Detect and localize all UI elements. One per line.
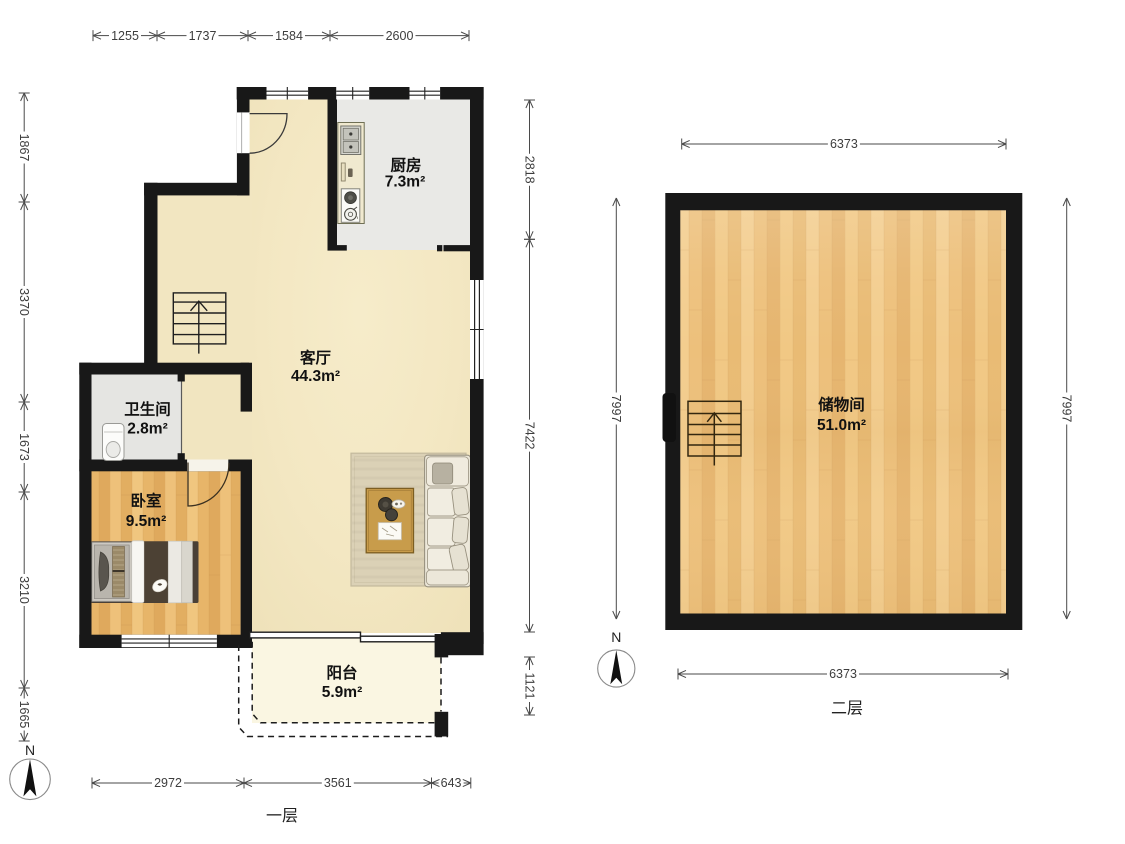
svg-text:44.3m²: 44.3m²: [291, 368, 340, 385]
svg-text:3210: 3210: [17, 576, 31, 604]
svg-text:7997: 7997: [1060, 395, 1074, 423]
svg-text:N: N: [611, 629, 621, 645]
svg-text:1737: 1737: [189, 29, 217, 43]
svg-text:储物间: 储物间: [817, 395, 865, 414]
svg-text:3561: 3561: [324, 776, 352, 790]
svg-text:2.8m²: 2.8m²: [127, 421, 168, 438]
svg-text:1867: 1867: [17, 134, 31, 162]
svg-text:6373: 6373: [830, 137, 858, 151]
svg-text:51.0m²: 51.0m²: [817, 417, 866, 434]
svg-text:阳台: 阳台: [326, 663, 357, 682]
svg-text:7422: 7422: [522, 422, 536, 450]
svg-text:7997: 7997: [609, 395, 623, 423]
svg-text:1673: 1673: [17, 433, 31, 461]
svg-text:5.9m²: 5.9m²: [322, 684, 363, 701]
svg-text:1584: 1584: [275, 29, 303, 43]
svg-text:2600: 2600: [386, 29, 414, 43]
svg-text:厨房: 厨房: [390, 156, 421, 175]
svg-text:N: N: [25, 742, 35, 758]
svg-text:3370: 3370: [17, 288, 31, 316]
svg-text:客厅: 客厅: [300, 348, 332, 367]
svg-text:643: 643: [441, 776, 462, 790]
svg-text:2818: 2818: [522, 156, 536, 184]
svg-text:卫生间: 卫生间: [124, 400, 171, 419]
svg-text:9.5m²: 9.5m²: [126, 513, 167, 530]
svg-text:6373: 6373: [829, 667, 857, 681]
svg-text:二层: 二层: [831, 701, 863, 718]
svg-text:7.3m²: 7.3m²: [385, 174, 426, 191]
svg-text:一层: 一层: [266, 808, 298, 825]
svg-text:2972: 2972: [154, 776, 182, 790]
svg-text:1255: 1255: [111, 29, 139, 43]
svg-text:1665: 1665: [17, 701, 31, 729]
svg-text:1121: 1121: [522, 673, 536, 700]
svg-text:卧室: 卧室: [130, 491, 161, 510]
